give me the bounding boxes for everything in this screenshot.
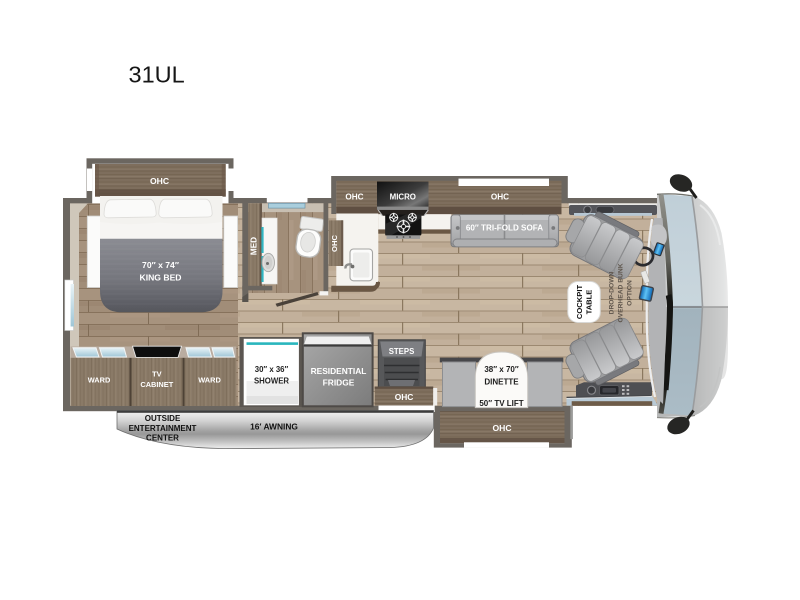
svg-text:OHC: OHC (395, 392, 414, 402)
svg-text:50″ TV LIFT: 50″ TV LIFT (479, 399, 523, 408)
svg-text:TABLE: TABLE (585, 290, 594, 315)
svg-text:MED: MED (250, 237, 259, 255)
svg-text:OPTION: OPTION (627, 280, 634, 306)
svg-text:FRIDGE: FRIDGE (323, 378, 355, 388)
svg-text:OHC: OHC (345, 193, 363, 202)
svg-text:WARD: WARD (198, 376, 221, 385)
svg-text:WARD: WARD (88, 376, 111, 385)
svg-text:TV: TV (152, 370, 162, 379)
svg-text:STEPS: STEPS (389, 347, 415, 356)
svg-text:OHC: OHC (491, 193, 509, 202)
svg-text:MICRO: MICRO (390, 192, 416, 201)
svg-text:DINETTE: DINETTE (484, 378, 519, 387)
svg-text:KING BED: KING BED (139, 273, 181, 283)
svg-text:OVERHEAD BUNK: OVERHEAD BUNK (618, 263, 625, 322)
svg-text:SHOWER: SHOWER (254, 377, 289, 386)
svg-text:CENTER: CENTER (146, 434, 179, 443)
svg-text:OHC: OHC (492, 423, 511, 433)
svg-text:CABINET: CABINET (140, 380, 173, 389)
svg-text:OHC: OHC (150, 176, 169, 186)
svg-text:OHC: OHC (330, 235, 339, 252)
svg-text:70″ x 74″: 70″ x 74″ (142, 260, 179, 270)
svg-text:30″ x 36″: 30″ x 36″ (255, 365, 289, 374)
svg-text:RESIDENTIAL: RESIDENTIAL (311, 366, 367, 376)
svg-text:ENTERTAINMENT: ENTERTAINMENT (129, 424, 197, 433)
svg-text:38″ x 70″: 38″ x 70″ (484, 365, 519, 374)
svg-text:31UL: 31UL (129, 62, 185, 88)
svg-text:60″ TRI-FOLD SOFA: 60″ TRI-FOLD SOFA (466, 223, 543, 232)
svg-text:COCKPIT: COCKPIT (575, 285, 584, 320)
svg-text:OUTSIDE: OUTSIDE (145, 414, 181, 423)
svg-text:16′ AWNING: 16′ AWNING (250, 422, 298, 432)
svg-text:DROP-DOWN: DROP-DOWN (609, 271, 616, 314)
